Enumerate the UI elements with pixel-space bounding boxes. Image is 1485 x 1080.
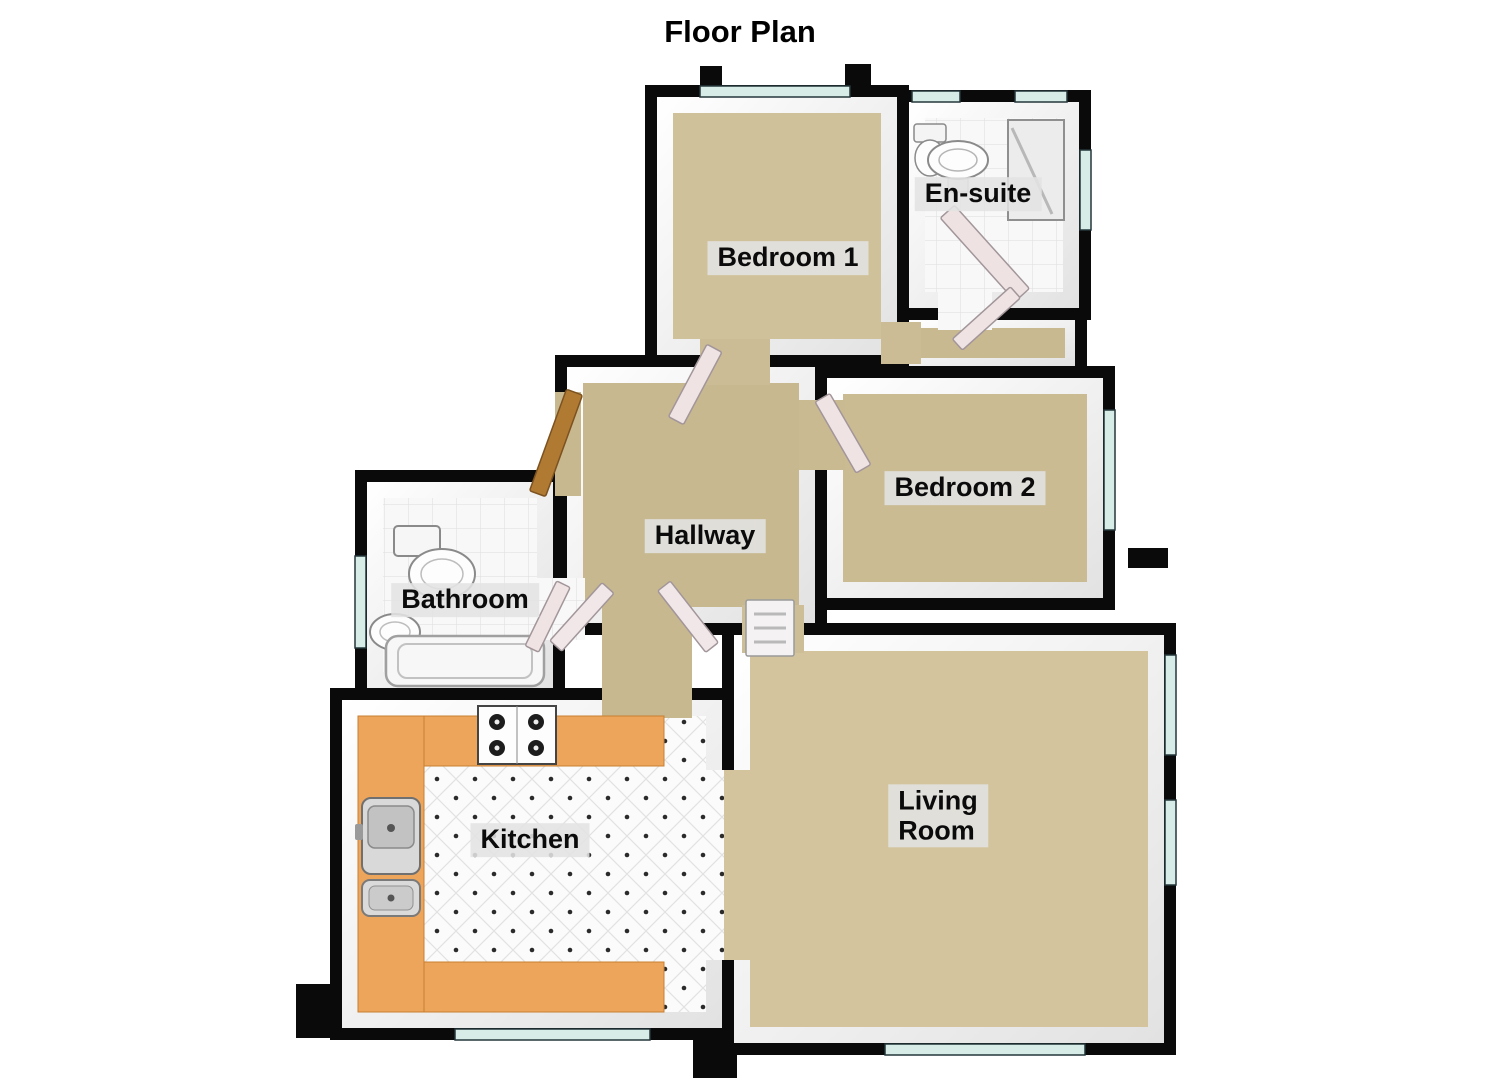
- window-bathroom-side: [355, 556, 366, 648]
- window-kitchen-bottom: [455, 1029, 650, 1040]
- room-label-kitchen: Kitchen: [470, 823, 589, 857]
- room-label-living-room: Living Room: [888, 784, 988, 847]
- kitchen-sink: [355, 798, 420, 916]
- room-label-living-line2: Room: [898, 816, 978, 846]
- window-living-side-1: [1165, 655, 1176, 755]
- room-label-bathroom: Bathroom: [391, 583, 539, 617]
- hob: [478, 706, 556, 764]
- window-ensuite-right: [1015, 91, 1067, 102]
- window-ensuite-side: [1080, 150, 1091, 230]
- page-title: Floor Plan: [664, 14, 816, 50]
- window-bedroom2-side: [1104, 410, 1115, 530]
- lobby-floor: [919, 328, 1065, 358]
- room-label-hallway: Hallway: [645, 519, 766, 553]
- hallway-floor: [583, 383, 799, 607]
- room-label-living-line1: Living: [898, 786, 978, 816]
- window-living-side-2: [1165, 800, 1176, 885]
- bedroom1-floor: [673, 113, 881, 339]
- room-label-bedroom1: Bedroom 1: [707, 241, 868, 275]
- room-label-bedroom2: Bedroom 2: [884, 471, 1045, 505]
- window-bedroom1-top: [700, 86, 850, 97]
- bathtub: [386, 636, 544, 686]
- living-room-door: [746, 600, 794, 656]
- window-ensuite-left: [912, 91, 960, 102]
- room-label-ensuite: En-suite: [915, 177, 1042, 211]
- window-living-bottom: [885, 1044, 1085, 1055]
- floor-plan: Floor Plan Bedroom 1 En-suite Bedroom 2 …: [0, 0, 1485, 1080]
